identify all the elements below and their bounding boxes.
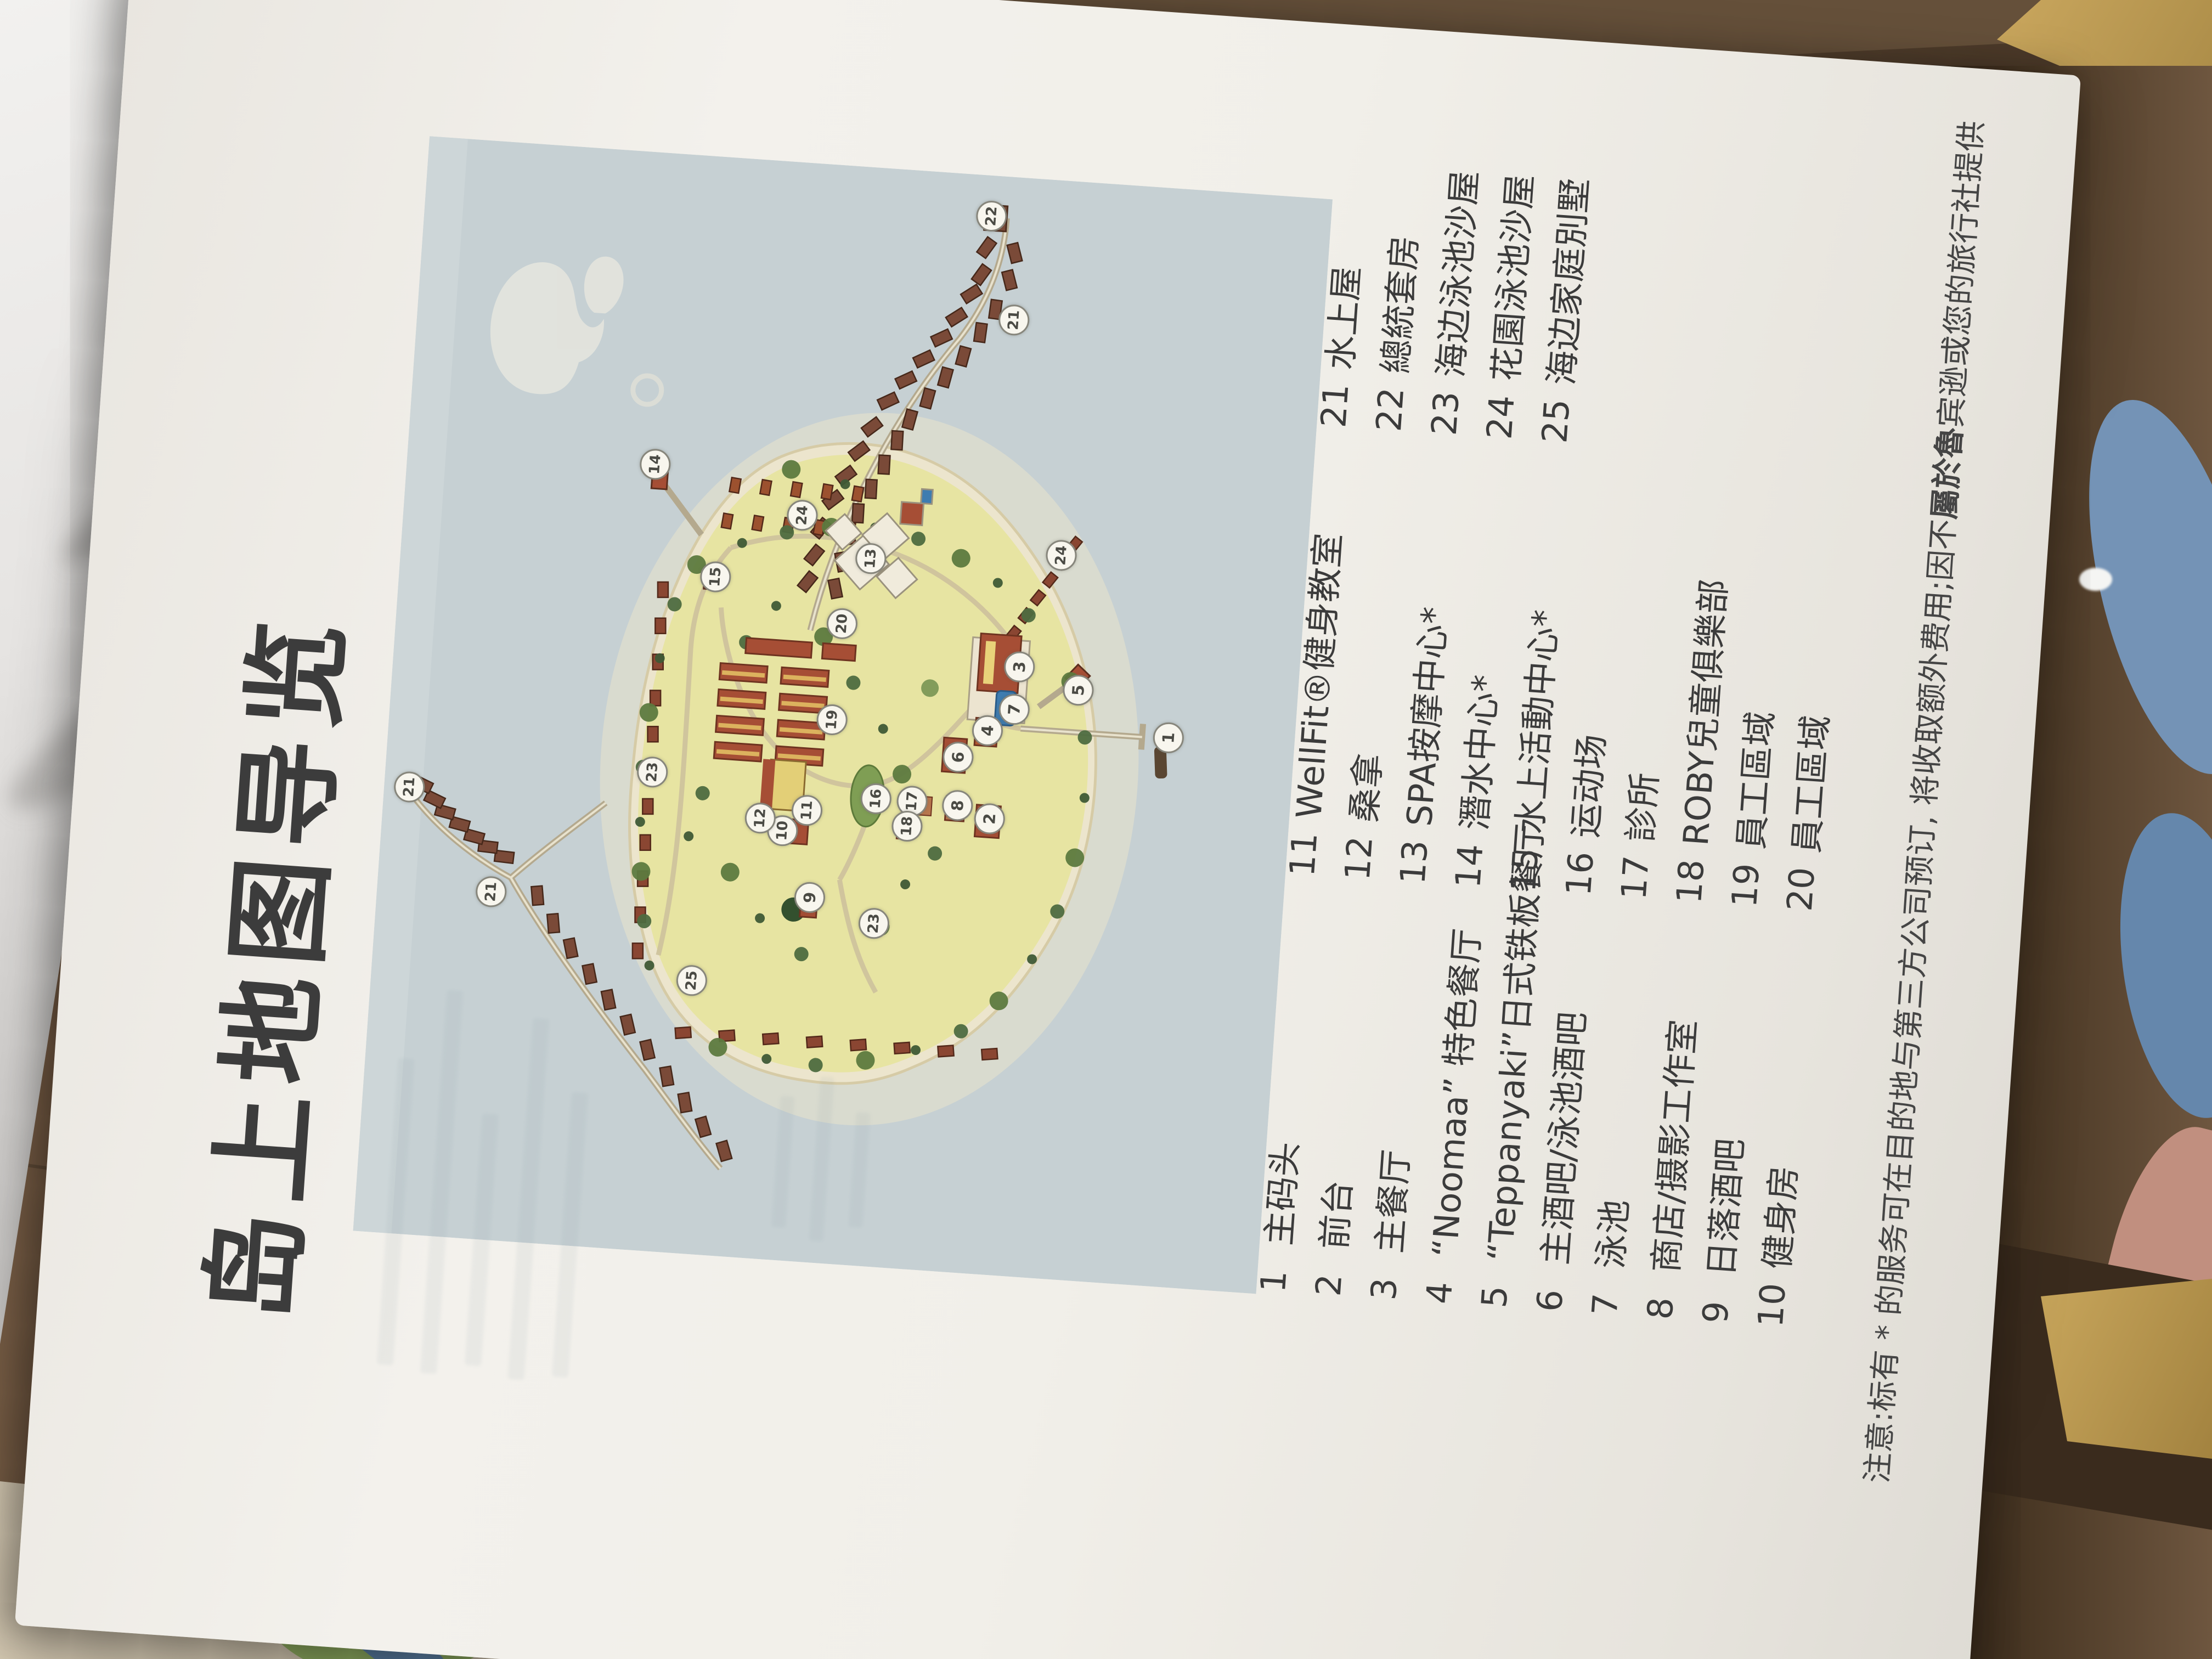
- legend-item-number: 16: [1559, 850, 1601, 897]
- legend-item-label: 运动场: [1558, 732, 1615, 839]
- legend-item-number: 6: [1530, 1277, 1572, 1313]
- map-leaflet-paper: 岛上地图导览: [15, 0, 2081, 1659]
- legend: 1主码头2前台3主餐厅4“Noomaa” 特色餐厅5“Teppanyaki”日式…: [1218, 59, 1906, 1659]
- legend-item-number: 18: [1669, 858, 1712, 905]
- legend-item-number: 13: [1392, 839, 1435, 885]
- light-reflection: [2079, 568, 2112, 591]
- legend-item-number: 4: [1419, 1269, 1461, 1305]
- page-content: 岛上地图导览: [47, 0, 2048, 1659]
- legend-column-3: 21水上屋22總統套房23海边泳池沙屋24花園泳池沙屋25海边家庭別墅: [1306, 161, 1601, 445]
- legend-item-label: 前台: [1307, 1178, 1362, 1251]
- legend-item-number: 5: [1474, 1273, 1516, 1309]
- legend-item-number: 9: [1695, 1289, 1737, 1325]
- legend-item-label: 日落酒吧: [1694, 1137, 1753, 1278]
- legend-item-label: 健身房: [1750, 1164, 1807, 1271]
- legend-item-number: 11: [1282, 831, 1325, 878]
- legend-item-label: 診所: [1613, 771, 1668, 843]
- legend-item-label: 員工區域: [1723, 709, 1782, 851]
- legend-item-label: 潛水中心*: [1447, 673, 1508, 832]
- legend-item-label: 泳池: [1583, 1198, 1638, 1270]
- legend-item-number: 7: [1584, 1281, 1627, 1317]
- legend-item-number: 25: [1534, 398, 1577, 444]
- legend-item-number: 8: [1640, 1285, 1682, 1321]
- legend-item-label: 主餐厅: [1362, 1148, 1419, 1255]
- legend-item-number: 21: [1313, 382, 1356, 429]
- legend-item-number: 10: [1751, 1282, 1793, 1328]
- legend-item-number: 15: [1503, 847, 1546, 893]
- legend-item-number: 12: [1338, 835, 1380, 882]
- legend-item-number: 20: [1780, 866, 1822, 912]
- legend-item-label: 海边家庭別墅: [1534, 176, 1598, 386]
- gold-object-bottom-right: [2041, 1278, 2212, 1459]
- legend-item-label: 桑拿: [1336, 752, 1391, 824]
- legend-item-label: 總統套房: [1368, 234, 1427, 375]
- photo-scene: 岛上地图导览: [0, 0, 2212, 1659]
- legend-item-number: 17: [1613, 854, 1656, 901]
- legend-item-number: 24: [1479, 394, 1522, 441]
- legend-item-number: 19: [1724, 862, 1767, 909]
- legend-item-number: 22: [1369, 386, 1412, 433]
- legend-item-number: 1: [1253, 1258, 1295, 1294]
- legend-item-label: 主码头: [1251, 1140, 1308, 1247]
- island-map: 1537246816171819201311101291415232324242…: [353, 136, 1333, 1294]
- legend-item-number: 3: [1363, 1266, 1406, 1301]
- page-title: 岛上地图导览: [166, 605, 370, 1325]
- legend-item-label: 員工區域: [1779, 713, 1838, 855]
- legend-item-number: 2: [1308, 1262, 1351, 1297]
- legend-column-2: 11WellFit®健身教室12桑拿13SPA按摩中心*14潛水中心*15水上活…: [1274, 531, 1851, 913]
- legend-item-number: 14: [1448, 843, 1491, 889]
- legend-item-number: 23: [1424, 390, 1467, 437]
- legend-item-label: 水上屋: [1313, 264, 1370, 371]
